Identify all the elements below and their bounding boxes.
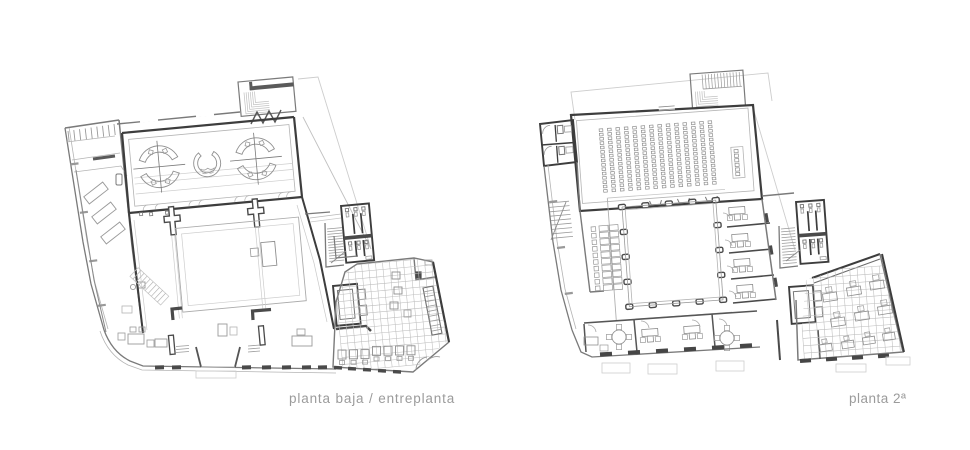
svg-text:planta 2ª: planta 2ª (849, 391, 907, 406)
svg-text:planta baja / entreplanta: planta baja / entreplanta (289, 391, 455, 406)
